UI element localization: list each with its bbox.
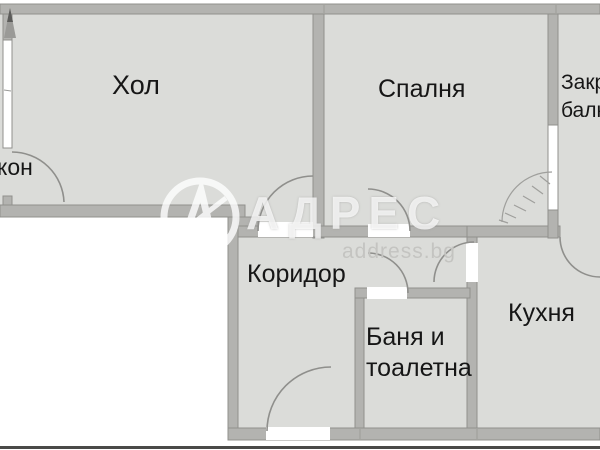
wall-banya-left: [355, 288, 364, 428]
watermark-site-text: address.bg: [342, 240, 456, 264]
room-label-koridor: Коридор: [247, 261, 346, 288]
room-label-kuhnya: Кухня: [508, 300, 575, 327]
wall-spalnya-balkon: [548, 14, 558, 125]
room-label-spalnya: Спалня: [378, 76, 465, 103]
room-label-zakrit-balkon: Закр балк: [561, 69, 600, 124]
bottom-border-line: [0, 446, 600, 449]
watermark-logo-slash: [174, 198, 226, 238]
floor-plan-canvas: АДРЕС address.bg Хол Спалня Закр балк ко…: [0, 0, 600, 450]
room-label-zakrit-line2: балк: [561, 97, 600, 125]
window-left-balcony: [3, 40, 12, 148]
window-spalnya-balkon: [548, 125, 558, 210]
watermark-logo: [152, 170, 248, 266]
door-opening-banya: [367, 287, 407, 299]
wall-top: [0, 4, 600, 14]
room-label-banya: Баня и тоалетна: [366, 322, 472, 383]
wall-spalnya-balkon-stub: [548, 210, 558, 238]
wall-kuhnya-top: [467, 226, 560, 237]
door-opening-kuhnya: [466, 243, 478, 282]
door-opening-entrance: [266, 427, 330, 440]
room-label-balkon: кон: [0, 155, 33, 180]
room-label-banya-line1: Баня и: [366, 322, 472, 353]
room-label-hol: Хол: [112, 71, 160, 100]
watermark-brand-text: АДРЕС: [246, 186, 448, 240]
room-label-zakrit-line1: Закр: [561, 69, 600, 97]
room-label-banya-line2: тоалетна: [366, 353, 472, 384]
